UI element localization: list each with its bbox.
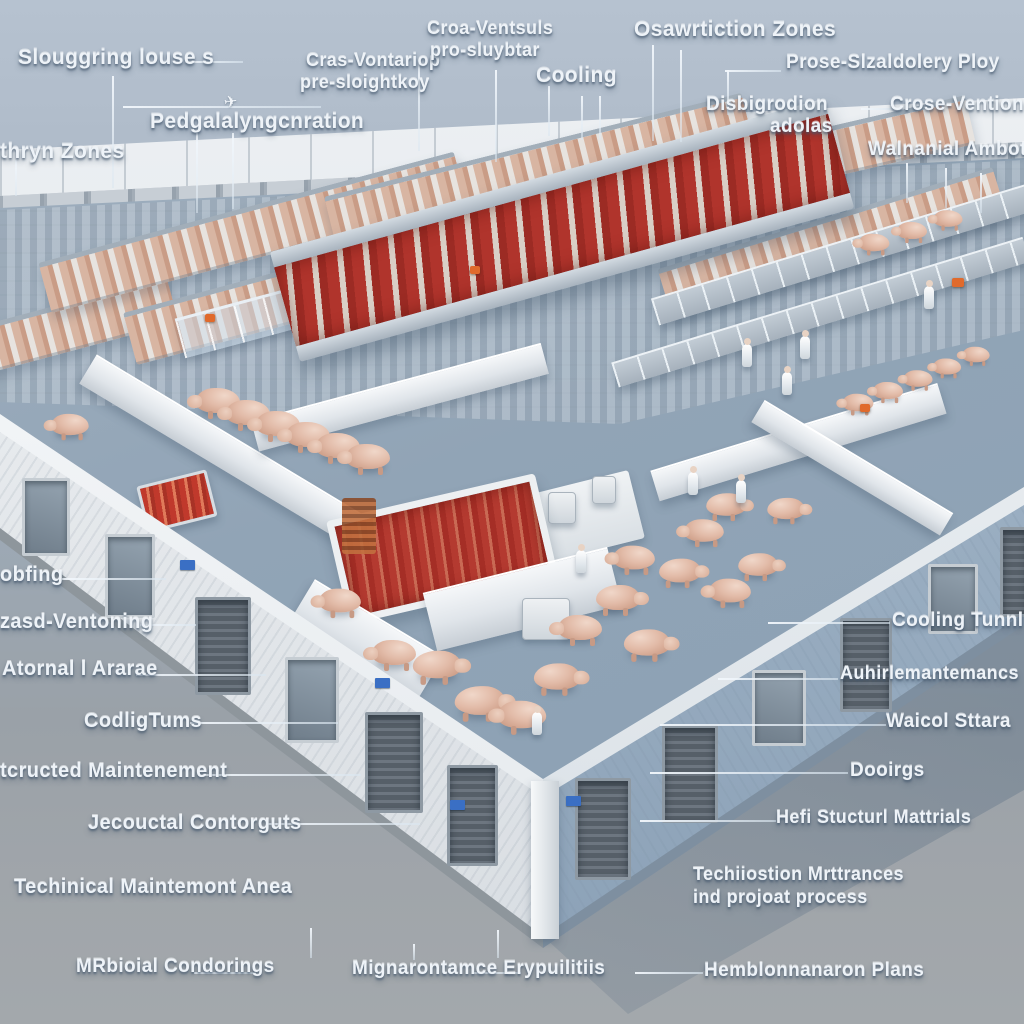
label-codlig-tums: CodligTums: [84, 710, 202, 733]
pig: [897, 222, 927, 239]
label-crose-vention: Crose-Vention: [890, 94, 1024, 116]
label-cooling-top: Cooling: [536, 64, 617, 88]
pig: [51, 414, 88, 435]
label-mrbioial-condorings: MRbioial Condorings: [76, 956, 275, 978]
pig: [859, 234, 890, 252]
window-opening: [105, 534, 155, 618]
leader-line: [310, 928, 312, 958]
orange-equipment-accent: [470, 266, 480, 274]
label-osawrtiction-zones: Osawrtiction Zones: [634, 18, 836, 42]
pig: [659, 559, 701, 583]
label-obfing: obfing: [0, 564, 63, 587]
copper-coil-unit: [342, 498, 376, 554]
leader-line: [725, 70, 781, 72]
pig: [684, 519, 724, 542]
label-slaughtering-houses: Slouggring louse s: [18, 46, 214, 70]
worker-figure: [532, 712, 542, 735]
orange-equipment-accent: [205, 314, 215, 322]
worker-figure: [800, 336, 810, 359]
label-waicol-sttara: Waicol Sttara: [886, 711, 1011, 733]
label-cras-vontariop-line2: pre-sloightkoy: [300, 72, 430, 93]
label-pedgalaly: Pedgalalyngcnration: [150, 110, 364, 134]
label-thryn-zones: thryn Zones: [0, 140, 125, 164]
pig: [767, 498, 804, 519]
leader-line: [495, 70, 497, 162]
worker-figure: [576, 550, 586, 573]
leader-line: [980, 173, 982, 213]
leader-line: [635, 972, 703, 974]
label-dooirgs: Dooirgs: [850, 760, 925, 782]
leader-line: [768, 622, 890, 624]
leader-line: [548, 86, 550, 136]
orange-equipment-accent: [860, 404, 870, 412]
label-cras-vontariop-line1: Cras-Vontariop: [306, 50, 440, 71]
pig: [319, 589, 361, 613]
roller-door: [662, 725, 718, 823]
worker-figure: [736, 480, 746, 503]
label-croa-ventsuls-line2: pro-sluybtar: [430, 40, 540, 61]
label-tcructed-maintenement: tcructed Maintenement: [0, 760, 227, 783]
pig: [738, 553, 778, 576]
leader-line: [599, 96, 601, 140]
leader-line: [190, 722, 338, 724]
pig: [624, 629, 670, 655]
scene-canvas: ✈ Slouggring louse s thryn Zones Pedgala…: [0, 0, 1024, 1024]
label-techinical-maintemont-anea: Techinical Maintemont Anea: [14, 876, 292, 899]
pig: [933, 210, 962, 227]
leader-line: [945, 168, 947, 208]
label-disbigrodion-line1: Disbigrodion: [706, 94, 828, 116]
label-croa-ventsuls-line1: Croa-Ventsuls: [427, 18, 553, 39]
leader-line: [232, 133, 234, 209]
roller-door: [365, 712, 423, 813]
window-opening: [752, 670, 806, 746]
worker-figure: [782, 372, 792, 395]
pig: [613, 546, 655, 570]
wall-sign: [566, 796, 581, 806]
leader-line: [15, 160, 17, 196]
roller-door: [447, 765, 498, 866]
window-opening: [22, 478, 70, 556]
pig: [596, 585, 640, 610]
pig: [558, 615, 602, 640]
label-auhirlemantemancs: Auhirlemantemancs: [840, 663, 1019, 684]
label-mignarontamce-erypuilitiis: Mignarontamce Erypuilitiis: [352, 958, 605, 980]
wall-sign: [375, 678, 390, 688]
leader-line: [205, 774, 361, 776]
equipment-unit: [548, 492, 576, 524]
label-hemblonnanaron-plans: Hemblonnanaron Plans: [704, 960, 924, 982]
label-jecouctal-contorguts: Jecouctal Contorguts: [88, 812, 302, 835]
pig: [873, 382, 903, 399]
leader-line: [861, 108, 891, 110]
leader-line: [581, 96, 583, 140]
leader-line: [196, 133, 198, 213]
wall-sign: [450, 800, 465, 810]
window-opening: [285, 657, 339, 743]
label-techiiostion-line2: ind projoat process: [693, 887, 868, 908]
pig: [962, 347, 989, 363]
label-walnanial-ambot: Walnanial Ambot: [868, 139, 1024, 161]
pig: [933, 359, 961, 375]
leader-line: [718, 678, 838, 680]
equipment-unit: [592, 476, 616, 504]
label-techiiostion-line1: Techiiostion Mrttrances: [693, 864, 904, 885]
roller-door: [195, 597, 251, 695]
leader-line: [62, 578, 166, 580]
worker-figure: [688, 472, 698, 495]
leader-line: [650, 772, 848, 774]
leader-line: [906, 163, 908, 203]
label-cooling-tunnl: Cooling Tunnl: [892, 610, 1023, 632]
leader-line: [112, 76, 114, 188]
label-hefi-stucturl-mattrials: Hefi Stucturl Mattrials: [776, 807, 971, 828]
roller-door: [1000, 527, 1024, 617]
pig: [346, 444, 390, 469]
pig: [903, 370, 932, 387]
building-corner-post: [531, 781, 559, 939]
label-prose-ploy: Prose-Slzaldolery Ploy: [786, 52, 1000, 74]
leader-line: [640, 820, 776, 822]
pig: [709, 579, 751, 603]
leader-line: [497, 930, 499, 958]
pig: [372, 640, 416, 665]
leader-line: [680, 50, 682, 142]
wall-sign: [180, 560, 195, 570]
pig: [413, 651, 461, 679]
roller-door: [575, 778, 631, 880]
worker-figure: [924, 286, 934, 309]
label-zasd-ventoning: zasd-Ventoning: [0, 611, 153, 634]
label-atornal-ararae: Atornal l Ararae: [2, 658, 158, 681]
pig: [534, 663, 580, 689]
leader-line: [652, 45, 654, 141]
worker-figure: [742, 344, 752, 367]
label-disbigrodion-line2: adolas: [770, 116, 833, 138]
leader-line: [123, 106, 321, 108]
orange-equipment-accent: [952, 278, 964, 287]
leader-line: [660, 724, 886, 726]
